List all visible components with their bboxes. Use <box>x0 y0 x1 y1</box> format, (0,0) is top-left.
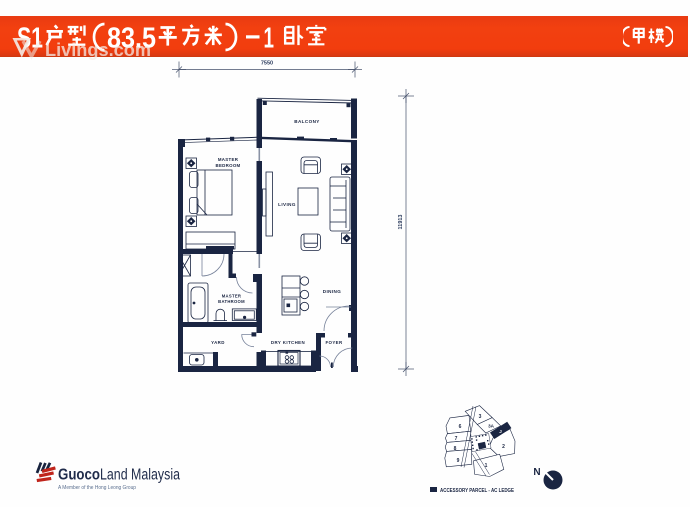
svg-text:3: 3 <box>479 414 482 420</box>
svg-text:11913: 11913 <box>398 215 404 230</box>
svg-text:FOYER: FOYER <box>325 340 343 345</box>
svg-text:DINING: DINING <box>323 289 342 294</box>
svg-text:ACCESSORY PARCEL - AC LEDGE: ACCESSORY PARCEL - AC LEDGE <box>440 488 514 494</box>
svg-text:J: J <box>499 429 502 434</box>
svg-text:MASTER: MASTER <box>218 157 239 162</box>
svg-text:N: N <box>533 467 540 478</box>
svg-text:8: 8 <box>454 446 457 452</box>
svg-text:3A: 3A <box>488 424 495 429</box>
svg-text:Land Malaysia: Land Malaysia <box>100 467 180 484</box>
svg-text:DRY KITCHEN: DRY KITCHEN <box>271 340 305 345</box>
svg-text:MASTER: MASTER <box>222 294 241 299</box>
svg-text:6: 6 <box>459 424 462 430</box>
svg-text:7: 7 <box>455 436 458 442</box>
svg-text:LIVING: LIVING <box>278 202 296 207</box>
svg-text:BEDROOM: BEDROOM <box>215 163 240 168</box>
svg-text:A Member of the Hong Leong Gro: A Member of the Hong Leong Group <box>58 485 136 491</box>
svg-text:YARD: YARD <box>211 340 225 345</box>
svg-text:2: 2 <box>502 444 505 450</box>
svg-text:Guoco: Guoco <box>58 467 100 484</box>
svg-text:1: 1 <box>485 463 488 469</box>
svg-text:BATHROOM: BATHROOM <box>218 299 245 304</box>
svg-text:7550: 7550 <box>261 61 273 67</box>
svg-text:9: 9 <box>457 458 460 464</box>
svg-text:BALCONY: BALCONY <box>294 119 320 124</box>
